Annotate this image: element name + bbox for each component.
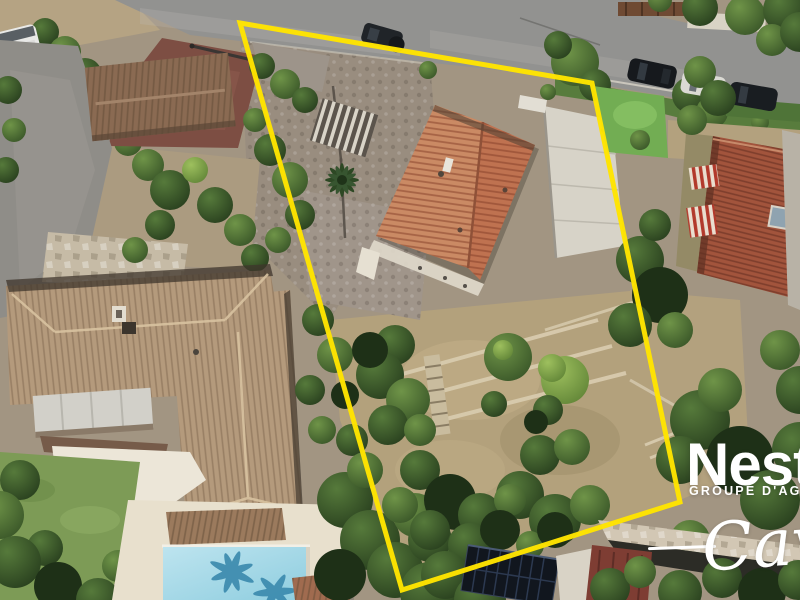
- pool-house-roof: [166, 508, 286, 545]
- striped-awning-1: [689, 164, 720, 190]
- palm-tree: [325, 163, 359, 197]
- car-overhang-tree-2: [700, 80, 736, 116]
- aerial-scene: [0, 0, 800, 600]
- signature-script: Cava: [700, 498, 800, 586]
- small-bush-2: [540, 84, 556, 100]
- striped-awning-2: [686, 204, 718, 238]
- top-left-building: [85, 53, 236, 142]
- aerial-photo: Nest GROUPE D'AGENC Cava: [0, 0, 800, 600]
- swimming-pool: [162, 546, 310, 600]
- car-overhang-tree-3: [677, 105, 707, 135]
- awning: [33, 388, 154, 438]
- small-bush: [419, 61, 437, 79]
- brand-subtitle: GROUPE D'AGENC: [689, 484, 800, 498]
